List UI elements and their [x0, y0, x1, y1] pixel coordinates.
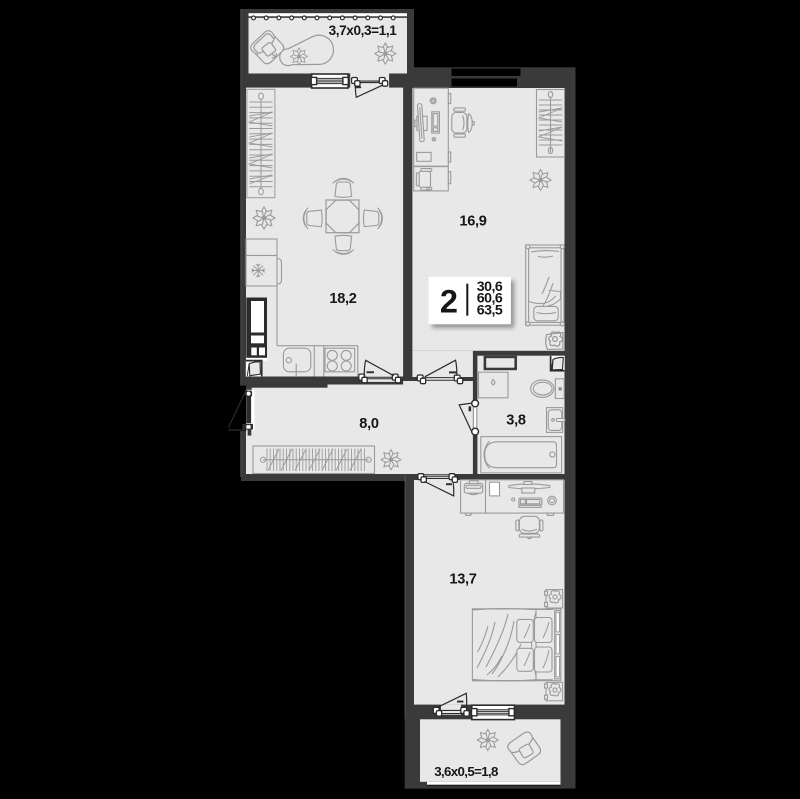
svg-text:18,2: 18,2	[329, 291, 356, 307]
svg-text:13,7: 13,7	[449, 572, 476, 588]
svg-text:8,0: 8,0	[359, 416, 379, 432]
svg-text:3,7х0,3=1,1: 3,7х0,3=1,1	[329, 23, 398, 38]
svg-text:63,5: 63,5	[477, 303, 503, 319]
svg-text:2: 2	[440, 283, 458, 319]
svg-text:3,6х0,5=1,8: 3,6х0,5=1,8	[434, 764, 498, 779]
svg-text:3,8: 3,8	[506, 412, 526, 428]
svg-text:16,9: 16,9	[459, 213, 486, 229]
